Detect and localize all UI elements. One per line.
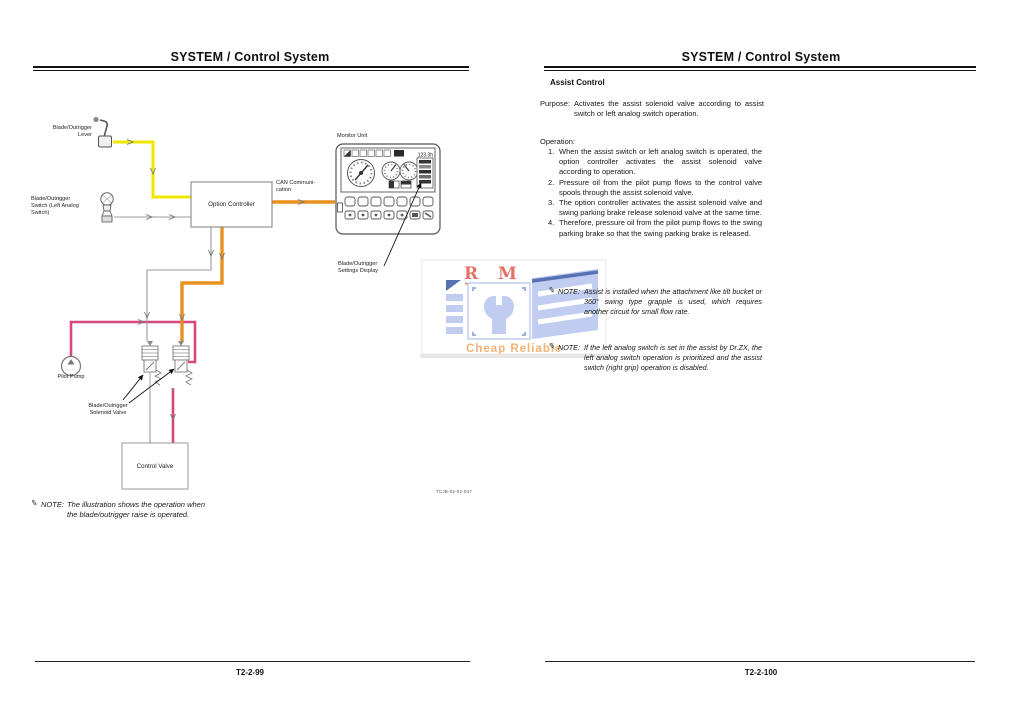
right-footer-rule [545, 661, 975, 662]
operation-list: 1. When the assist switch or left analog… [548, 147, 762, 239]
lever-signal-wire [113, 142, 191, 197]
monitor-unit-drawing: 123.3h [336, 144, 440, 234]
operation-item-text: When the assist switch or left analog sw… [559, 147, 762, 178]
note-label: NOTE: [41, 500, 67, 520]
controller-to-right-valve-wire [182, 227, 222, 341]
note-text: The illustration shows the operation whe… [67, 500, 260, 520]
right-header-rule [544, 66, 976, 71]
operation-item: 3. The option controller activates the a… [548, 198, 762, 218]
control-system-diagram: 123.3h [0, 0, 520, 720]
solenoid-valve-label: Blade/Outrigger Solenoid Valve [70, 403, 146, 417]
right-page-title: SYSTEM / Control System [543, 50, 979, 64]
option-controller-label: Option Controller [191, 182, 272, 227]
operation-item-text: Pressure oil from the pilot pump flows t… [559, 178, 762, 198]
left-page-note: ✎ NOTE: The illustration shows the opera… [30, 500, 260, 520]
pilot-pump-icon [62, 357, 81, 376]
control-valve-label: Control Valve [122, 443, 188, 489]
operation-item-number: 1. [548, 147, 559, 178]
assist-note-2: ✎ NOTE: If the left analog switch is set… [547, 343, 762, 372]
lever-label: Blade/Outrigger Lever [38, 125, 92, 139]
monitor-buttons-row1 [345, 197, 433, 206]
left-solenoid-valve-icon [142, 341, 161, 390]
left-footer-rule [35, 661, 470, 662]
switch-label: Blade/Outrigger Switch (Left Analog Swit… [31, 196, 99, 217]
note-label: NOTE: [558, 343, 584, 372]
monitor-mode-indicator [394, 150, 404, 157]
purpose-block: Purpose: Activates the assist solenoid v… [540, 99, 764, 119]
operation-label: Operation: [540, 137, 575, 147]
left-analog-switch-icon [101, 193, 113, 222]
left-page-number: T2-2-99 [30, 668, 470, 677]
settings-display-label: Blade/Outrigger Settings Display [338, 261, 402, 275]
assist-control-heading: Assist Control [550, 78, 605, 87]
pilot-pump-label: Pilot Pump [46, 374, 96, 381]
note-text: Assist is installed when the attachment … [584, 287, 762, 316]
can-communication-label: CAN Communi- cation [276, 180, 334, 194]
purpose-label: Purpose: [540, 99, 574, 119]
operation-item-number: 3. [548, 198, 559, 218]
operation-item: 2. Pressure oil from the pilot pump flow… [548, 178, 762, 198]
operation-item: 4. Therefore, pressure oil from the pilo… [548, 218, 762, 238]
note-label: NOTE: [558, 287, 584, 316]
right-solenoid-valve-icon [173, 341, 192, 390]
operation-item-text: The option controller activates the assi… [559, 198, 762, 218]
operation-item-text: Therefore, pressure oil from the pilot p… [559, 218, 762, 238]
monitor-unit-label: Monitor Unit [337, 133, 397, 140]
right-page-number: T2-2-100 [543, 668, 979, 677]
blade-outrigger-lever-icon [93, 117, 111, 147]
operation-item-number: 4. [548, 218, 559, 238]
purpose-text: Activates the assist solenoid valve acco… [574, 99, 764, 119]
operation-item: 1. When the assist switch or left analog… [548, 147, 762, 178]
assist-note-1: ✎ NOTE: Assist is installed when the att… [547, 287, 762, 316]
settings-display-panel [417, 158, 433, 188]
operation-item-number: 2. [548, 178, 559, 198]
note-text: If the left analog switch is set in the … [584, 343, 762, 372]
drawing-code: TCJB-02-02-047 [410, 489, 472, 494]
